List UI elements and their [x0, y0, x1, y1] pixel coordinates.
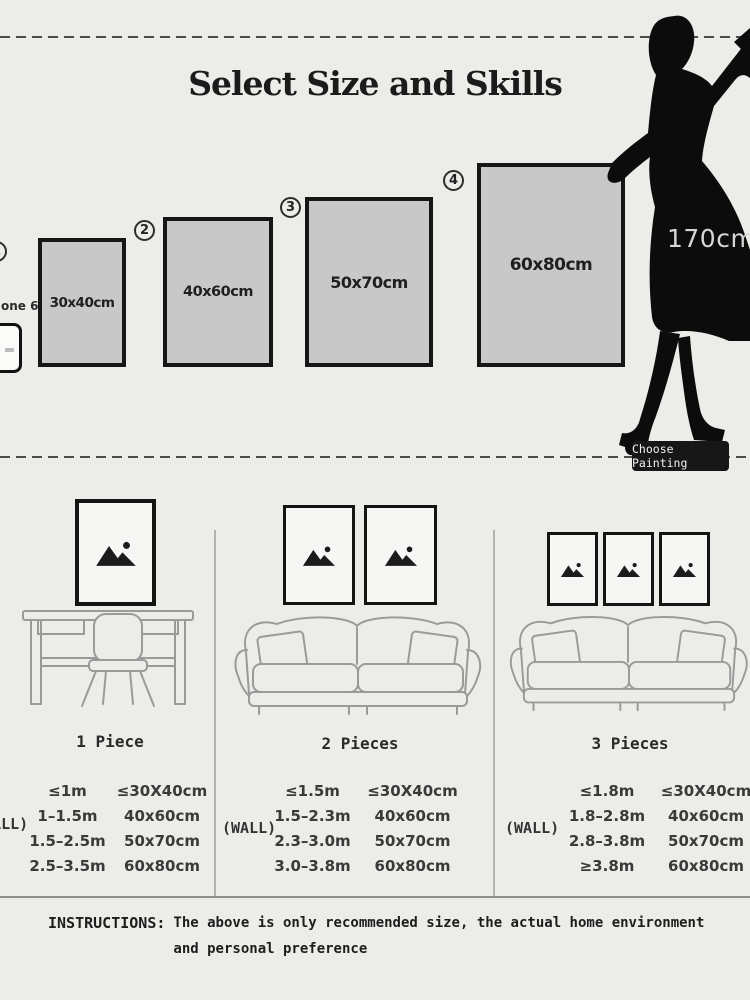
wall-frame [283, 505, 355, 605]
size-table-2pieces: (WALL) ≤1.5m 1.5–2.3m 2.3–3.0m 3.0–3.8m … [215, 779, 493, 883]
image-placeholder-icon [560, 562, 585, 577]
image-placeholder-icon [384, 545, 418, 566]
recommended-size: 40x60cm [112, 804, 212, 829]
image-placeholder-icon [616, 562, 641, 577]
size-table-3pieces: (WALL) ≤1.8m 1.8–2.8m 2.8–3.8m ≥3.8m ≤30… [494, 779, 750, 883]
size-rect-50x70-label: 50x70cm [330, 273, 408, 292]
instructions-text: The above is only recommended size, the … [173, 910, 721, 962]
image-placeholder-icon [302, 545, 336, 566]
wall-range: 1.5–2.3m [255, 804, 370, 829]
wall-label: (WALL) [0, 815, 28, 833]
scene-1-label: 1 Piece [30, 732, 190, 751]
choose-painting-button[interactable]: Choose Painting [632, 441, 729, 471]
size-rect-30x40-label: 30x40cm [50, 295, 115, 311]
size-rect-30x40: 30x40cm [38, 238, 126, 367]
wall-frame [364, 505, 437, 605]
size-guide-infographic: Select Size and Skills 1 one 6 30x40cm 2… [0, 0, 750, 1000]
size-number-3-text: 3 [286, 200, 295, 215]
recommended-size: ≤30X40cm [355, 779, 470, 804]
recommended-size: 50x70cm [650, 829, 750, 854]
desk-and-chair-illustration [18, 598, 198, 713]
size-number-1-text: 1 [0, 244, 1, 259]
recommended-size: 60x80cm [650, 854, 750, 879]
wall-range: 3.0–3.8m [255, 854, 370, 879]
wall-range: 1–1.5m [25, 804, 110, 829]
image-placeholder-icon [95, 540, 137, 566]
wall-frame [659, 532, 710, 606]
sofa-illustration [507, 606, 750, 714]
size-rect-60x80-label: 60x80cm [510, 255, 593, 275]
wall-range: ≥3.8m [551, 854, 663, 879]
size-number-3: 3 [280, 197, 301, 218]
wall-range: 2.3–3.0m [255, 829, 370, 854]
image-placeholder-icon [672, 562, 697, 577]
instructions-block: INSTRUCTIONS: The above is only recommen… [48, 910, 738, 962]
size-number-1: 1 [0, 241, 7, 262]
size-rect-50x70: 50x70cm [305, 197, 433, 367]
recommended-size: 50x70cm [355, 829, 470, 854]
recommended-size: 60x80cm [112, 854, 212, 879]
recommended-size: 50x70cm [112, 829, 212, 854]
wall-frame [547, 532, 598, 606]
wall-range: ≤1.8m [551, 779, 663, 804]
phone-reference-outline [0, 323, 22, 373]
wall-range: 1.5–2.5m [25, 829, 110, 854]
footer-divider [0, 896, 750, 898]
size-number-2: 2 [134, 220, 155, 241]
size-rect-40x60-label: 40x60cm [183, 284, 253, 300]
recommended-size: ≤30X40cm [112, 779, 212, 804]
size-number-2-text: 2 [140, 223, 149, 238]
size-rect-40x60: 40x60cm [163, 217, 273, 367]
wall-frame [75, 499, 156, 606]
wall-frame [603, 532, 654, 606]
wall-range: 2.8–3.8m [551, 829, 663, 854]
wall-range: 2.5–3.5m [25, 854, 110, 879]
phone-reference-label: one 6 [1, 299, 38, 313]
scene-3-label: 3 Pieces [550, 734, 710, 753]
recommended-size: 40x60cm [355, 804, 470, 829]
wall-range: ≤1m [25, 779, 110, 804]
recommended-size: ≤30X40cm [650, 779, 750, 804]
wall-range: ≤1.5m [255, 779, 370, 804]
recommended-size: 60x80cm [355, 854, 470, 879]
scene-2-label: 2 Pieces [280, 734, 440, 753]
wall-range: 1.8–2.8m [551, 804, 663, 829]
recommended-size: 40x60cm [650, 804, 750, 829]
height-reference-label: 170cm [667, 224, 750, 253]
size-number-4-text: 4 [449, 173, 458, 188]
size-number-4: 4 [443, 170, 464, 191]
phone-screen-mark [5, 348, 14, 352]
sofa-illustration [232, 606, 484, 718]
instructions-label: INSTRUCTIONS: [48, 910, 165, 936]
size-table-1piece: (WALL) ≤1m 1–1.5m 1.5–2.5m 2.5–3.5m ≤30X… [0, 779, 212, 883]
